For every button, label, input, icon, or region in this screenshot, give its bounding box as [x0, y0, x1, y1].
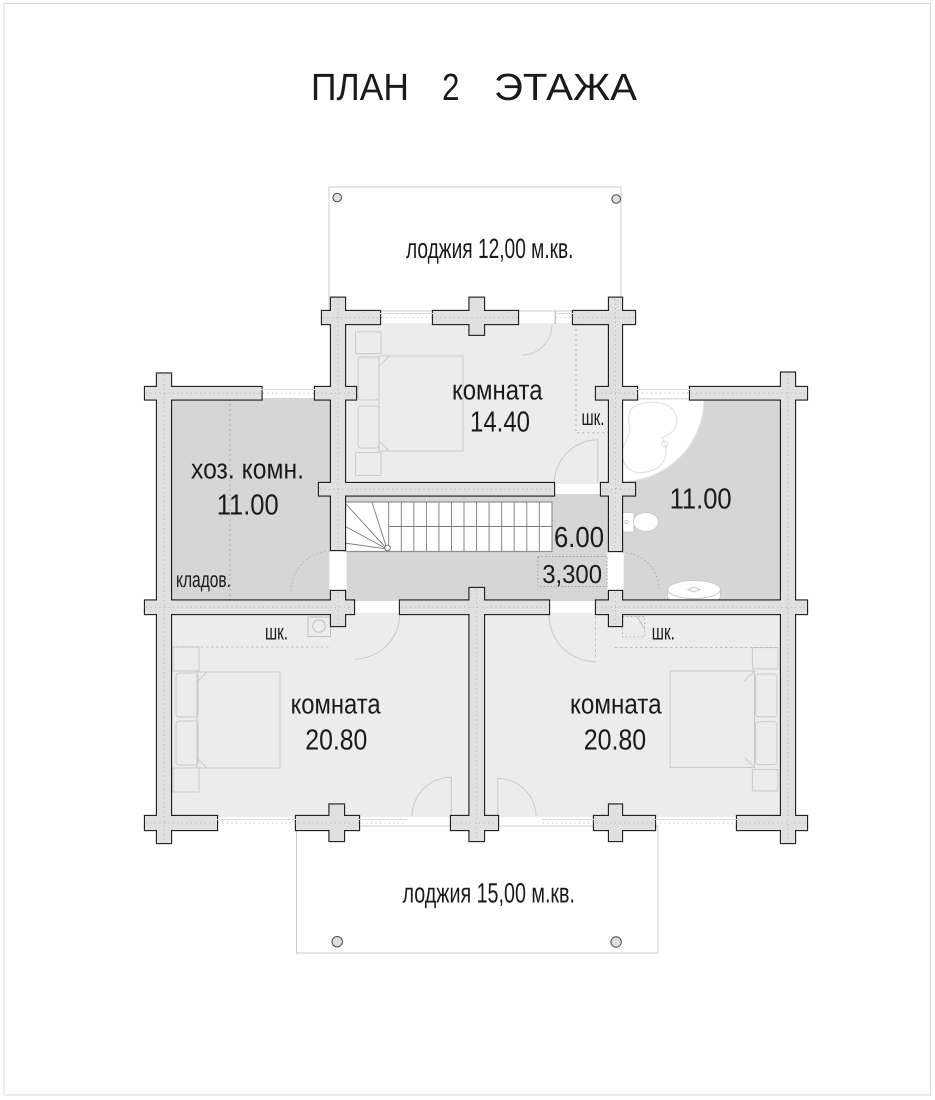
- svg-text:6.00: 6.00: [554, 522, 604, 554]
- svg-text:11.00: 11.00: [217, 489, 279, 521]
- svg-text:шк.: шк.: [582, 405, 605, 430]
- svg-text:14.40: 14.40: [470, 407, 530, 439]
- svg-text:хоз. комн.: хоз. комн.: [191, 453, 304, 484]
- svg-text:2: 2: [442, 67, 460, 109]
- svg-text:ПЛАН: ПЛАН: [311, 67, 409, 109]
- svg-text:3,300: 3,300: [542, 559, 602, 589]
- svg-text:20.80: 20.80: [305, 724, 367, 756]
- svg-text:комната: комната: [570, 689, 662, 720]
- svg-text:комната: комната: [452, 375, 543, 406]
- svg-text:комната: комната: [291, 689, 381, 720]
- svg-text:лоджия 15,00 м.кв.: лоджия 15,00 м.кв.: [403, 878, 576, 909]
- svg-text:шк.: шк.: [652, 620, 675, 645]
- svg-text:шк.: шк.: [265, 620, 288, 645]
- svg-text:20.80: 20.80: [584, 724, 647, 756]
- svg-text:лоджия 12,00 м.кв.: лоджия 12,00 м.кв.: [406, 233, 574, 264]
- svg-text:кладов.: кладов.: [176, 567, 231, 592]
- svg-text:11.00: 11.00: [670, 484, 732, 516]
- svg-text:ЭТАЖА: ЭТАЖА: [494, 67, 638, 109]
